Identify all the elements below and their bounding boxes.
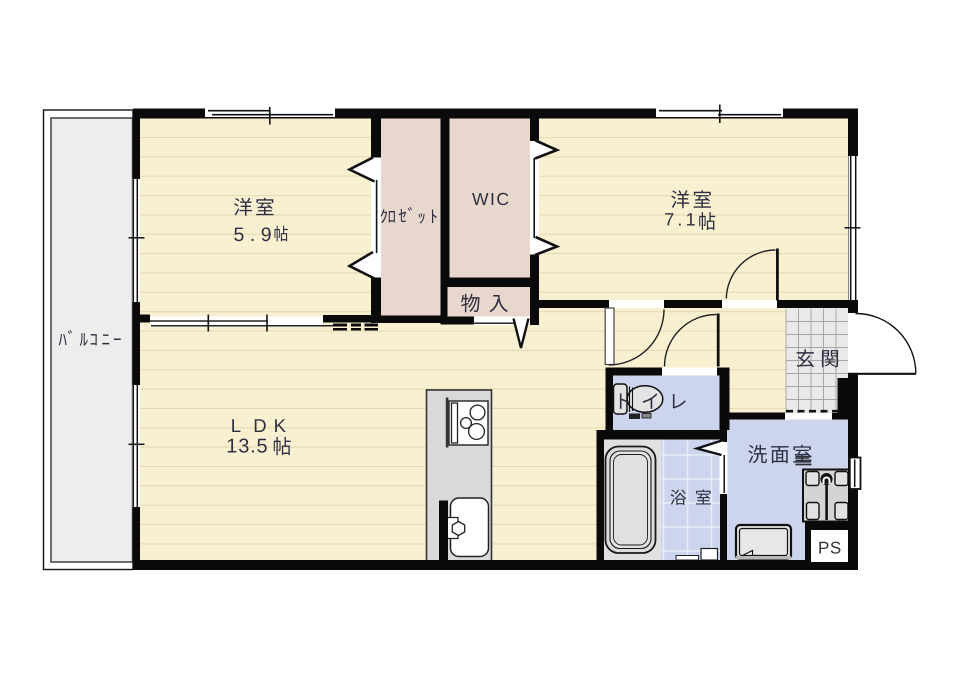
svg-text:K: K: [274, 415, 287, 436]
svg-text:7.1: 7.1: [664, 209, 699, 229]
svg-text:WIC: WIC: [472, 189, 511, 209]
svg-text:PS: PS: [818, 539, 842, 558]
svg-text:5.9: 5.9: [234, 224, 278, 246]
svg-text:13.5: 13.5: [226, 435, 268, 457]
svg-text:L: L: [231, 415, 241, 436]
svg-text:D: D: [253, 415, 266, 436]
